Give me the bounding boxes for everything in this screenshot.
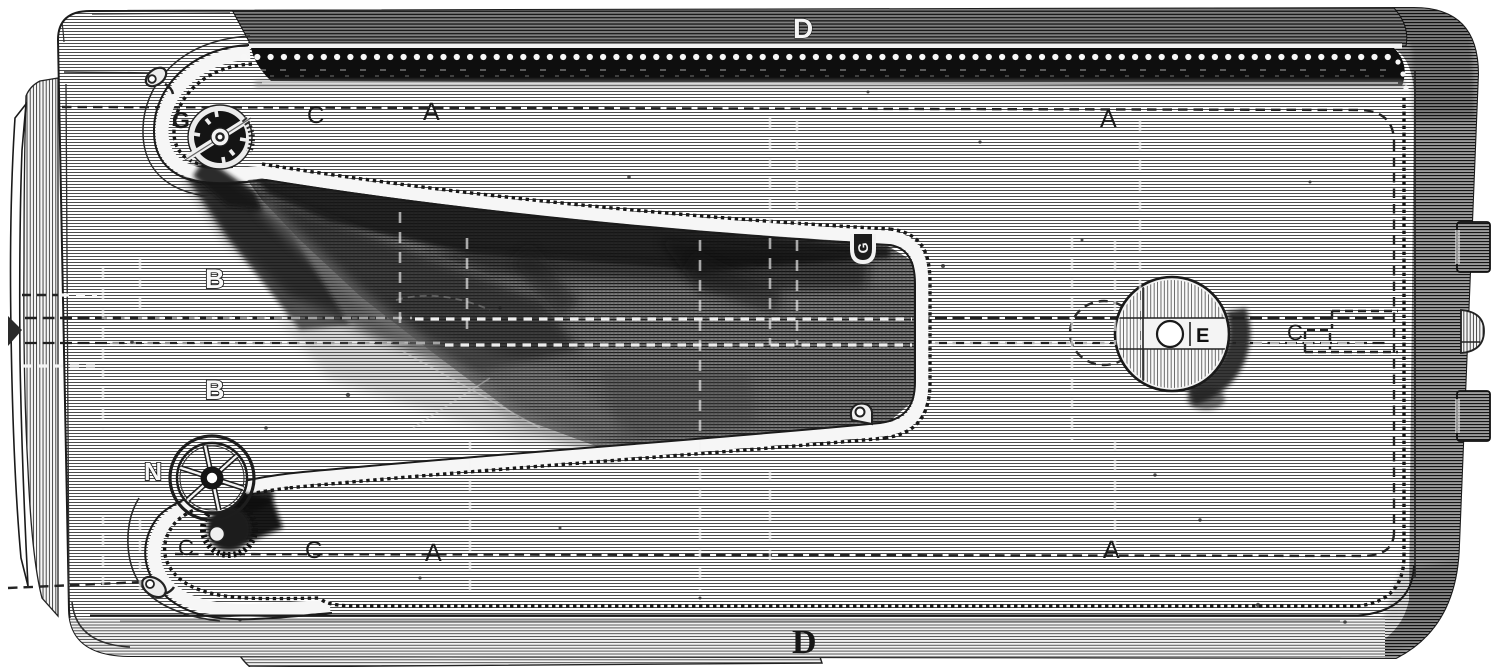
svg-text:C: C <box>307 102 324 129</box>
svg-text:G: G <box>854 242 871 254</box>
svg-text:N: N <box>144 458 162 486</box>
svg-text:B: B <box>205 264 225 294</box>
svg-text:D: D <box>793 13 813 44</box>
svg-text:A: A <box>1103 536 1120 564</box>
svg-text:B: B <box>205 375 225 405</box>
svg-text:G: G <box>172 107 190 133</box>
svg-text:C: C <box>1287 320 1303 345</box>
svg-text:C: C <box>305 537 322 564</box>
svg-text:D: D <box>792 624 817 661</box>
svg-text:A: A <box>423 98 440 126</box>
svg-text:A: A <box>425 539 442 567</box>
svg-text:E: E <box>1196 325 1209 347</box>
svg-text:A: A <box>1100 105 1117 133</box>
svg-text:C: C <box>178 535 194 560</box>
